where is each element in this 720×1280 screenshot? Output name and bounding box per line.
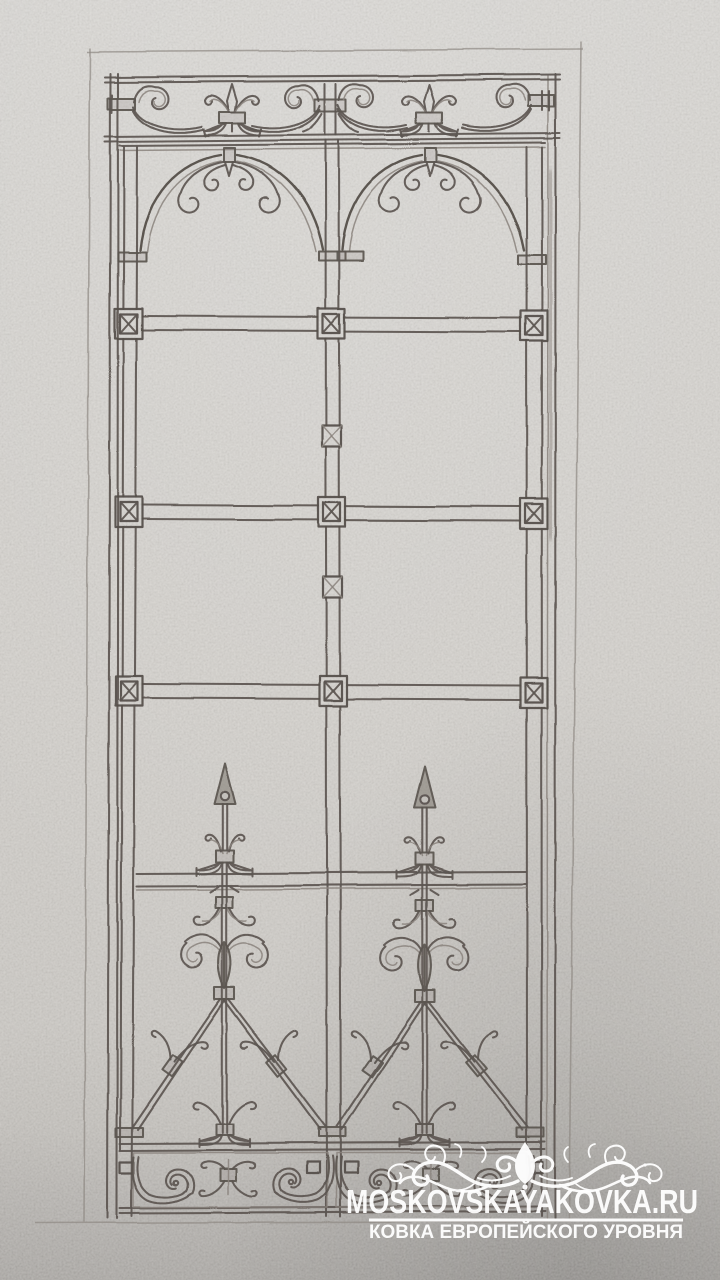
svg-text:MOSKOVSKAYAKOVKA.RU: MOSKOVSKAYAKOVKA.RU bbox=[346, 1183, 698, 1220]
svg-text:КОВКА ЕВРОПЕЙСКОГО УРОВНЯ: КОВКА ЕВРОПЕЙСКОГО УРОВНЯ bbox=[369, 1221, 683, 1243]
